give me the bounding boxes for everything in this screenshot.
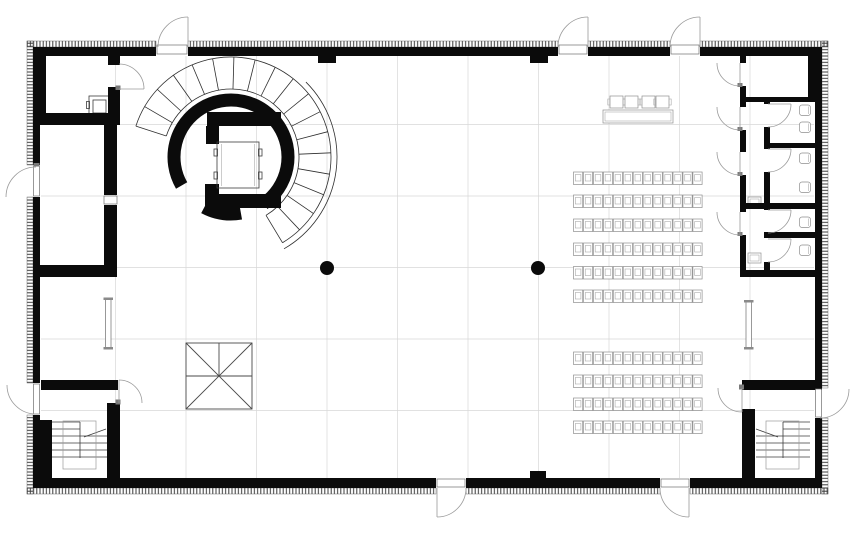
seat [593,421,602,434]
glazing-band [27,41,33,165]
seat [574,352,583,365]
seat [603,195,612,208]
seat [574,267,583,280]
door-swing-arc [717,152,740,175]
wall-segment [33,197,40,383]
seat-row [574,219,703,232]
seat [623,290,632,303]
wc-fixture [800,153,811,164]
seat-row [574,352,703,365]
wall-segment [808,56,822,102]
door-swing-arc [670,17,700,47]
seat [673,375,682,388]
spiral-step [233,57,234,89]
seat-row [574,172,703,185]
seat [633,243,642,256]
seat [593,267,602,280]
seat [633,375,642,388]
door-swing-arc [6,167,36,197]
seat [683,219,692,232]
seat [623,195,632,208]
glazing-band [588,41,670,47]
seat [603,398,612,411]
wall-segment [764,143,815,148]
seat [623,219,632,232]
door-swing-arc [660,488,689,517]
seat [613,352,622,365]
wall-segment [740,86,746,107]
spiral-step [273,79,293,104]
wall-segment [740,130,746,152]
dumbwaiter-shaft [93,100,106,113]
spiral-step [284,94,309,114]
seat [653,352,662,365]
head-chair [656,96,669,108]
seat [613,398,622,411]
exterior-door-stair-right [820,389,849,418]
door-swing-arc [158,17,188,47]
seat [693,375,702,388]
door-threshold [437,479,465,487]
seat [613,375,622,388]
seat [693,290,702,303]
wc-hall-door-4 [717,212,740,235]
seat [683,243,692,256]
spiral-step [136,126,166,136]
seat [673,172,682,185]
seat [663,421,672,434]
seat [693,243,702,256]
door-swing-arc [820,389,849,418]
seat [663,398,672,411]
seat-row [574,243,703,256]
elevator-shaft-wall [207,112,281,126]
spiral-step [266,215,282,242]
spiral-step [192,65,204,94]
spiral-step [145,107,173,123]
head-chair [610,96,623,108]
glazing-band [27,488,436,494]
door-swing-arc [437,488,466,517]
seat [593,375,602,388]
wall-segment [40,56,46,113]
column [320,261,334,275]
seat [583,398,592,411]
seat [574,243,583,256]
door-swing-arc [768,104,791,127]
seat [633,172,642,185]
door-threshold [104,196,117,204]
stair-handrail [63,421,96,469]
spiral-step [247,60,255,91]
wall-segment [588,47,670,56]
wall-segment [188,47,558,56]
wc-stall-door-2 [768,149,791,172]
spiral-step [173,75,191,101]
entrance-door-top-left [158,17,188,47]
seat [574,421,583,434]
seat [603,219,612,232]
seat [593,352,602,365]
seat [633,195,642,208]
seat [653,195,662,208]
seat-row [574,421,703,434]
seat [583,195,592,208]
screen-cap [104,298,114,301]
exterior-door-stair-left [7,385,36,414]
seat [653,375,662,388]
wall-segment [466,478,660,488]
seat [613,290,622,303]
seat-row [574,398,703,411]
door-swing-arc [119,64,144,89]
wall-segment [742,409,755,478]
seat-row [574,195,703,208]
seat-row [574,267,703,280]
seat [633,352,642,365]
wall-segment [764,97,770,104]
seat [663,172,672,185]
seat [633,398,642,411]
elevator-car [217,142,259,188]
seat [593,195,602,208]
seat [623,172,632,185]
seat [583,375,592,388]
seat [663,352,672,365]
spiral-step [299,153,331,154]
seat [643,195,652,208]
wall-segment [815,418,822,478]
seat [643,421,652,434]
wc-fixture [800,217,811,228]
screen-cap [744,300,754,303]
seat [683,267,692,280]
seat [583,267,592,280]
spiral-step [278,207,300,230]
seat [683,375,692,388]
seat [663,267,672,280]
seat [603,352,612,365]
glazing-band [700,41,828,47]
seat [603,375,612,388]
wall-segment [108,56,120,65]
wall-segment [40,265,117,277]
seat [643,243,652,256]
seat [653,172,662,185]
seat [663,243,672,256]
seat [633,267,642,280]
screen-cap [104,347,114,350]
screen-panel [746,302,752,348]
wall-segment [740,56,746,63]
entrance-door-bottom-right [660,488,689,517]
stair-left-hall-door [119,380,142,403]
wc-fixture [800,122,811,133]
spiral-step [213,59,219,90]
wall-segment [40,113,120,125]
entrance-door-top-right [670,17,700,47]
wall-segment [104,125,117,195]
seat [633,421,642,434]
head-chair [642,96,655,108]
door-hinge [34,163,40,167]
seat [643,398,652,411]
seat [613,243,622,256]
entrance-door-top-middle [558,17,588,47]
seat [593,219,602,232]
seat [623,375,632,388]
door-threshold [34,166,40,196]
seat-row [574,290,703,303]
door-swing-arc [717,212,740,235]
exterior-door-left-room [6,167,36,197]
seat [683,172,692,185]
seat [593,290,602,303]
seat [643,267,652,280]
spiral-step [298,169,330,174]
seat [574,290,583,303]
door-threshold [34,384,40,414]
seat [693,172,702,185]
seat [673,219,682,232]
seat [603,172,612,185]
seat [673,398,682,411]
wc-hall-door-2 [717,107,740,130]
seat [643,290,652,303]
wc-stall-door-3 [768,210,791,233]
glazed-screens [104,298,754,350]
screen-panel [106,299,112,348]
floor-plan-drawing [0,0,860,545]
seat [693,267,702,280]
glazing-band [188,41,558,47]
seat [593,172,602,185]
spiral-step [261,67,275,96]
door-swings [6,17,849,517]
wall-segment [33,47,156,56]
seat [603,243,612,256]
seat [693,219,702,232]
seat [603,421,612,434]
door-threshold [671,45,699,54]
wall-segment [33,47,40,165]
door-swing-arc [7,385,36,414]
wall-segment [742,380,822,390]
seat [643,352,652,365]
seat [673,267,682,280]
seat [633,290,642,303]
wall-segment [108,87,120,113]
seat [693,398,702,411]
seat [683,352,692,365]
seat [653,421,662,434]
seat [693,352,702,365]
seat [673,421,682,434]
glazing-band [27,41,156,47]
door-threshold [816,389,822,417]
seat [653,398,662,411]
wc-hall-door-3 [717,152,740,175]
elevator-shaft-wall [205,194,281,208]
wall-segment [318,56,336,63]
seat [623,398,632,411]
wall-segment [41,380,118,390]
glazing-band [822,41,828,388]
spiral-step [294,183,324,195]
wc-stall-door-4 [768,239,791,262]
elevator-core [174,100,288,214]
seat [663,375,672,388]
seat [583,290,592,303]
door-swing-arc [768,210,791,233]
wall-segment [764,172,770,210]
door-swing-arc [119,380,142,403]
door-hinge [116,400,121,405]
door-swing-arc [768,149,791,172]
wall-segment [530,56,548,63]
seat [574,219,583,232]
wall-segment [530,471,546,478]
seat [583,352,592,365]
door-swing-arc [558,17,588,47]
seat [613,421,622,434]
storeroom-door [119,64,144,89]
structural-columns [320,261,545,275]
wall-segment [764,262,770,270]
glazing-band [27,197,33,383]
seat [613,267,622,280]
wall-segment [740,175,746,212]
seat [643,219,652,232]
glazing-band [690,488,828,494]
seat [583,219,592,232]
seat [673,290,682,303]
seat [673,352,682,365]
seat [683,195,692,208]
door-swing-arc [718,388,742,412]
seat [574,172,583,185]
door-hinge [739,385,744,390]
glazing-band [27,415,33,494]
door-swing-arc [717,63,740,86]
door-threshold [157,45,187,54]
seat [623,267,632,280]
seat [574,195,583,208]
seat [613,172,622,185]
seat [623,352,632,365]
seat [643,172,652,185]
seat [603,267,612,280]
wc-fixture [800,105,811,116]
seat [643,375,652,388]
wall-segment [40,420,52,478]
stair-handrail [766,421,799,469]
seat [603,290,612,303]
seat [574,398,583,411]
wall-segment [690,478,822,488]
column [531,261,545,275]
door-threshold [559,45,587,54]
wc-stall-door-1 [768,104,791,127]
head-chair [625,96,638,108]
door-swing-arc [717,107,740,130]
spiral-step [287,195,313,213]
seat [683,398,692,411]
entrance-door-bottom-left [437,488,466,517]
wall-segment [107,403,120,478]
spiral-step [292,112,321,127]
screen-cap [744,347,754,350]
spiral-ring-wall [204,207,241,214]
glazing-band [466,488,660,494]
wall-segment [700,47,822,56]
door-swing-arc [768,239,791,262]
seat [593,398,602,411]
seat [663,290,672,303]
wall-segment [746,203,815,209]
stair-right-hall-door [718,388,742,412]
seat [693,195,702,208]
seat [623,243,632,256]
seat [583,421,592,434]
seat [653,219,662,232]
wall-segment [764,127,770,149]
seat [583,243,592,256]
floor-plan-page [0,0,860,545]
seat [663,219,672,232]
seat [623,421,632,434]
auditorium-seating [574,96,703,434]
seat-row [574,375,703,388]
spiral-step [297,132,328,140]
skylight-marker [186,343,252,409]
spiral-step [157,89,181,111]
seat [673,195,682,208]
seat [653,267,662,280]
door-thresholds [34,45,822,487]
elevator-shaft-wall [206,126,219,144]
wc-hall-door-1 [717,63,740,86]
seat [653,290,662,303]
wall-segment [740,270,815,277]
wall-segment [33,478,436,488]
seat [593,243,602,256]
seat [693,421,702,434]
seat [613,219,622,232]
wall-segment [33,415,40,478]
wc-fixture [800,245,811,256]
seat [683,421,692,434]
seat [683,290,692,303]
seat [613,195,622,208]
door-threshold [661,479,689,487]
seat [574,375,583,388]
wc-fixture [800,182,811,193]
seat [653,243,662,256]
seat [663,195,672,208]
seat [583,172,592,185]
glazing-band [822,418,828,494]
wall-segment [746,97,815,102]
seat [633,219,642,232]
seat [673,243,682,256]
